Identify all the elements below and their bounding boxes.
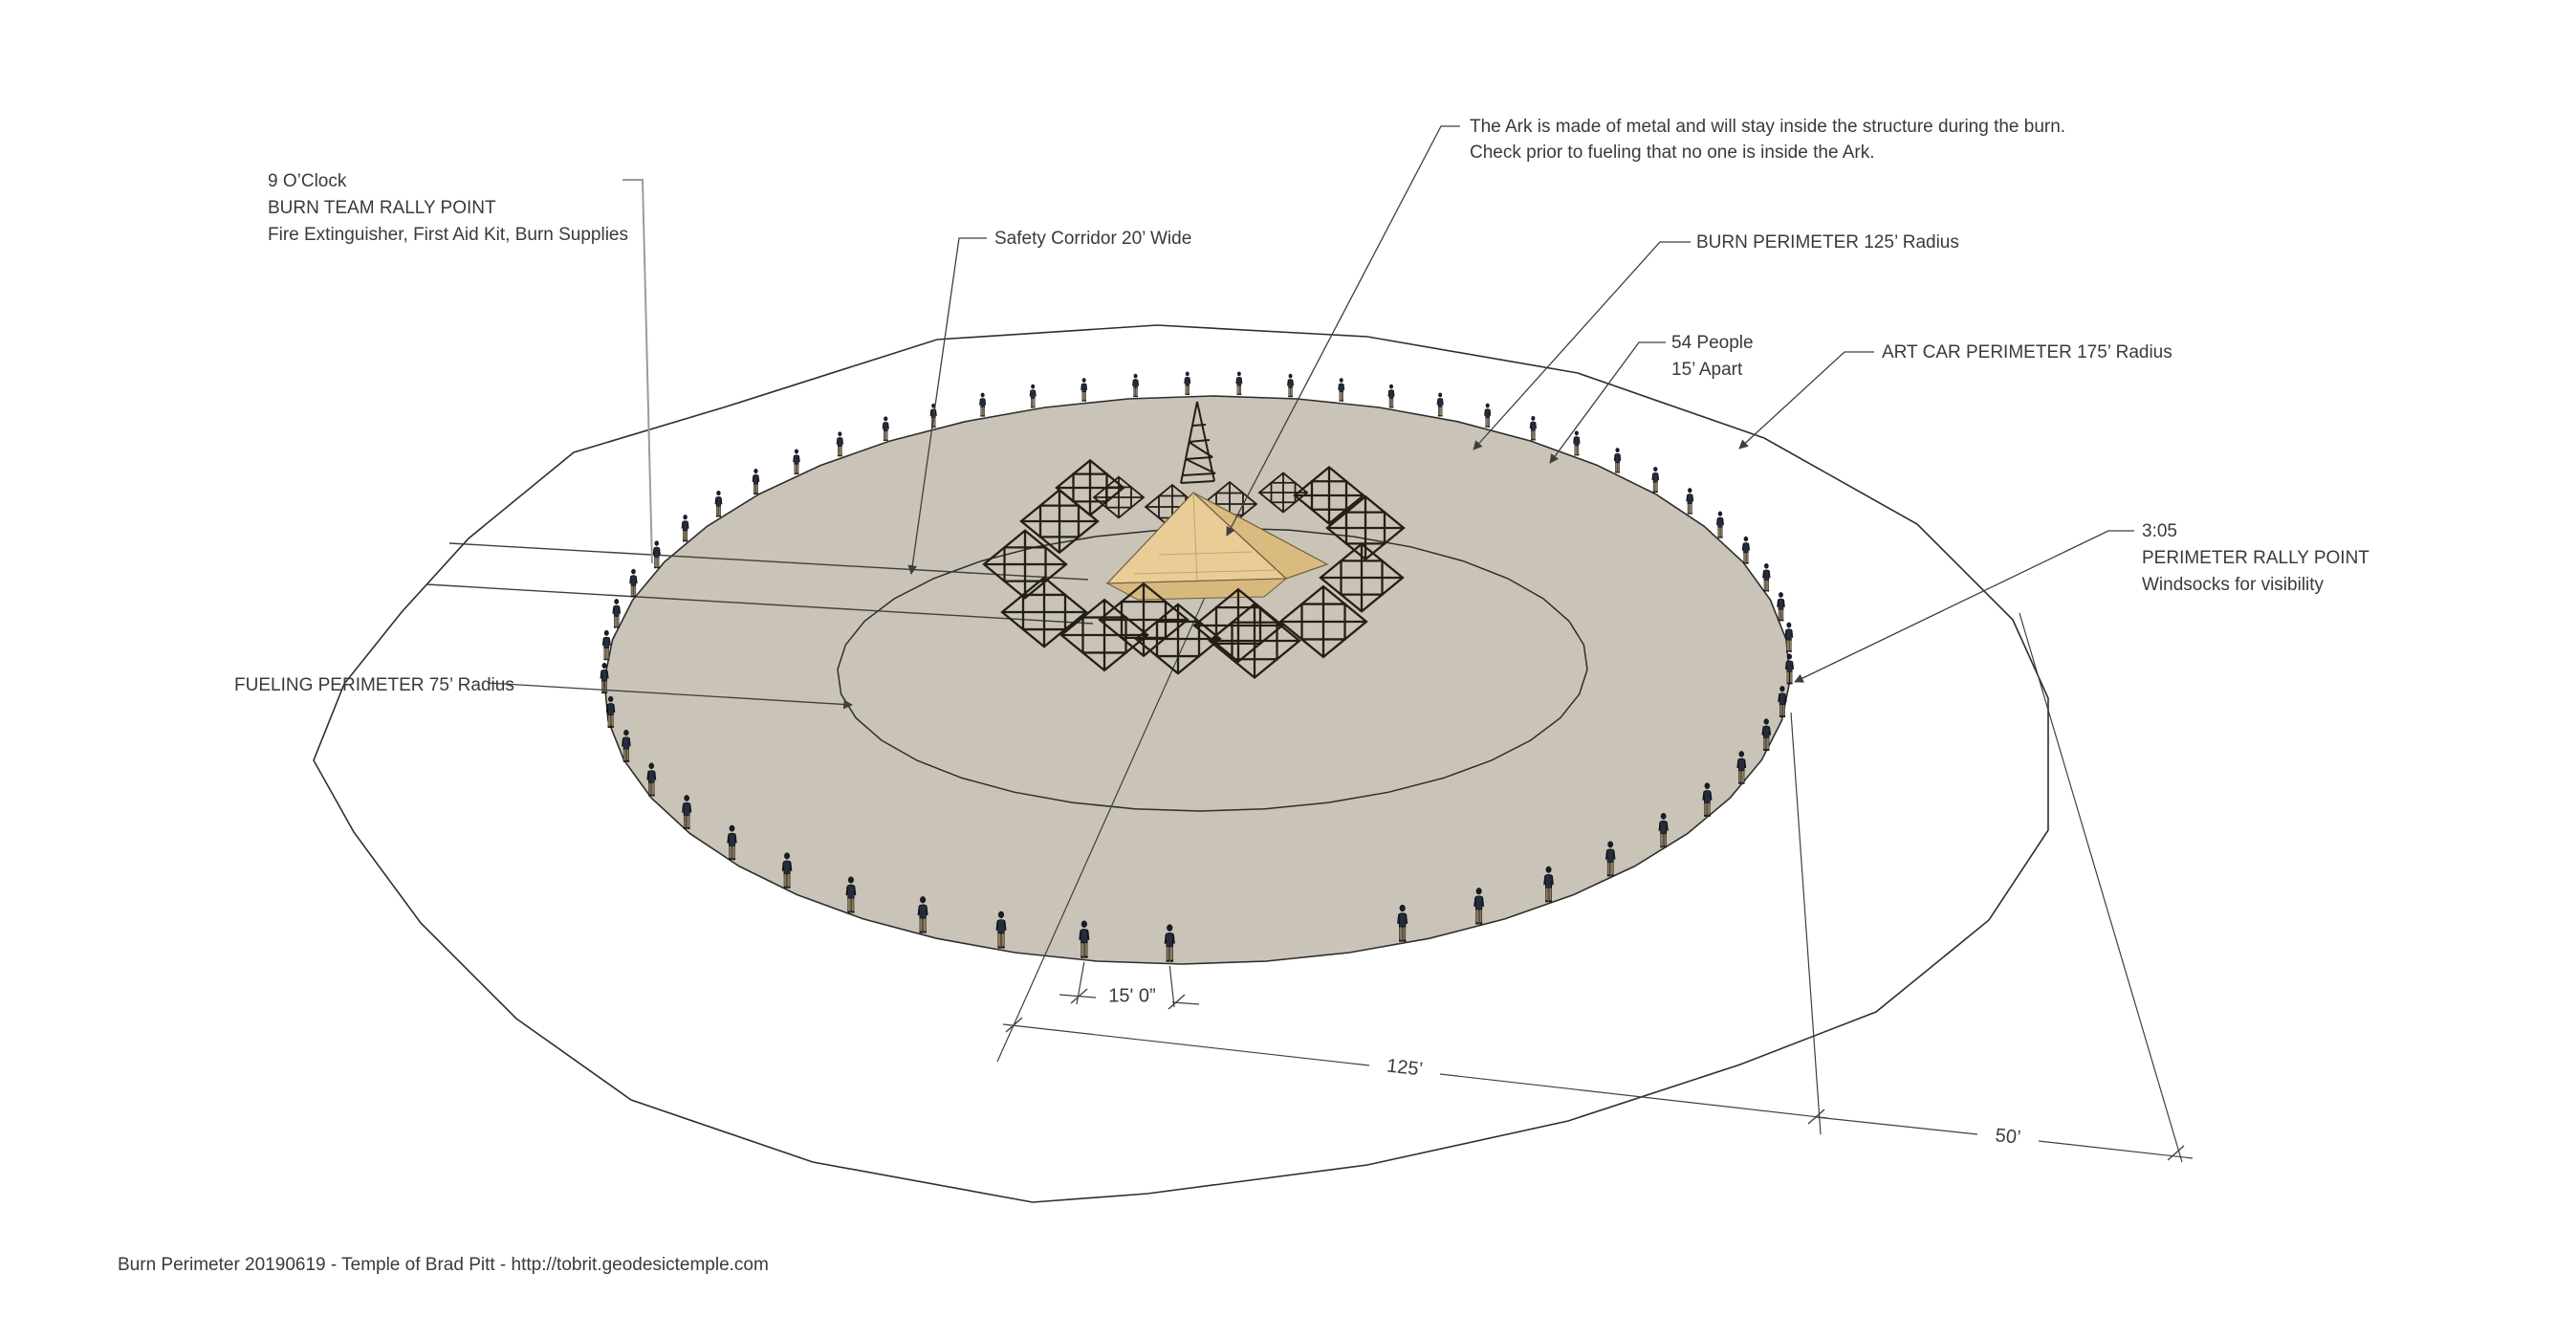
extension-line-art-car-edge	[2019, 613, 2182, 1162]
people-label: 54 People 15’ Apart	[1671, 330, 1754, 384]
people-line1: 54 People	[1671, 330, 1754, 357]
dimension-tick	[2168, 1146, 2184, 1160]
fueling-perimeter-text: FUELING PERIMETER 75’ Radius	[234, 672, 514, 699]
rally-305-line3: Windsocks for visibility	[2142, 572, 2369, 599]
dimension-15ft-text: 15' 0”	[1108, 986, 1155, 1008]
burn-perimeter-diagram: 9 O’Clock BURN TEAM RALLY POINT Fire Ext…	[0, 0, 2576, 1339]
rally-305-line2: PERIMETER RALLY POINT	[2142, 545, 2369, 572]
rally-9-label: 9 O’Clock BURN TEAM RALLY POINT Fire Ext…	[268, 168, 628, 249]
safety-corridor-label: Safety Corridor 20’ Wide	[994, 226, 1191, 252]
ark-note-line1: The Ark is made of metal and will stay i…	[1470, 114, 2065, 140]
drawing-title: Burn Perimeter 20190619 - Temple of Brad…	[118, 1255, 769, 1276]
burn-perimeter-label: BURN PERIMETER 125’ Radius	[1696, 230, 1959, 256]
safety-corridor-text: Safety Corridor 20’ Wide	[994, 226, 1191, 252]
fueling-perimeter-label: FUELING PERIMETER 75’ Radius	[234, 672, 514, 699]
dimension-50ft-text: 50’	[1995, 1125, 2022, 1150]
burn-perimeter-text: BURN PERIMETER 125’ Radius	[1696, 230, 1959, 256]
ark-note-line2: Check prior to fueling that no one is in…	[1470, 140, 2065, 165]
rally-305-label: 3:05 PERIMETER RALLY POINT Windsocks for…	[2142, 518, 2369, 599]
rally-305-line1: 3:05	[2142, 518, 2369, 545]
rally-9-line1: 9 O’Clock	[268, 168, 628, 195]
art-car-perimeter-label: ART CAR PERIMETER 175’ Radius	[1882, 340, 2172, 366]
ark-note-label: The Ark is made of metal and will stay i…	[1470, 114, 2065, 165]
art-car-perimeter-leader	[1739, 352, 1874, 449]
art-car-perimeter-text: ART CAR PERIMETER 175’ Radius	[1882, 340, 2172, 366]
dimension-125ft-text: 125’	[1386, 1055, 1424, 1081]
rally-9-line2: BURN TEAM RALLY POINT	[268, 195, 628, 222]
rally-9-line3: Fire Extinguisher, First Aid Kit, Burn S…	[268, 222, 628, 249]
people-line2: 15’ Apart	[1671, 357, 1754, 384]
